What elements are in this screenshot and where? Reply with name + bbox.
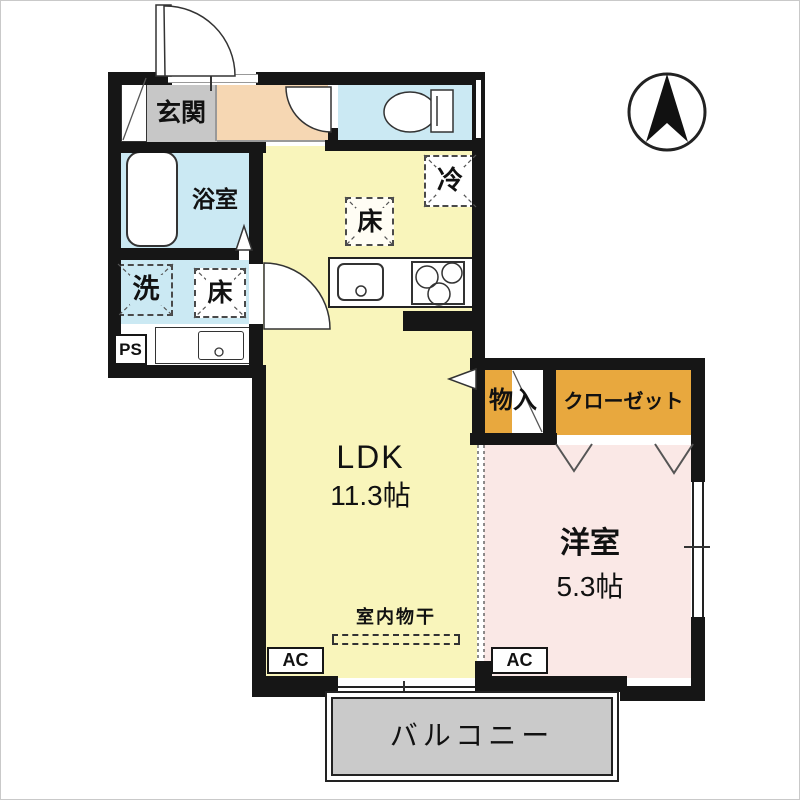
ldk-size-label: 11.3帖 — [298, 480, 443, 512]
laundry-label: 洗 — [130, 275, 162, 305]
western-size-label: 5.3帖 — [515, 570, 665, 604]
washroom-door-arc — [264, 263, 330, 329]
balcony-label: バルコニー — [331, 697, 613, 776]
shoe-cabinet-diagonal — [123, 78, 146, 140]
stove-burner-1 — [416, 266, 438, 288]
floor-wash-label: 床 — [206, 279, 234, 307]
closet-label: クローゼット — [556, 388, 691, 416]
closet-door-v2 — [655, 444, 693, 473]
western-name-label: 洋室 — [515, 526, 665, 562]
entrance-door-arc — [164, 6, 235, 76]
ldk-name-label: LDK — [298, 438, 443, 476]
toilet-tank — [431, 90, 453, 132]
washbasin-drain — [215, 348, 223, 356]
fridge-label: 冷 — [436, 167, 464, 195]
genkan-label: 玄関 — [147, 95, 215, 131]
sliding-door-marker — [449, 369, 476, 389]
stove-burner-3 — [428, 283, 450, 305]
bath-door-marker — [236, 226, 252, 250]
storage-label: 物入 — [482, 386, 544, 416]
sink-drain — [356, 286, 366, 296]
floor-plan: PS AC AC — [0, 0, 800, 800]
indoor-drying-label: 室内物干 — [320, 606, 472, 628]
toilet-door-arc — [286, 87, 331, 132]
floor-kitchen-label: 床 — [356, 208, 384, 236]
bathroom-label: 浴室 — [181, 184, 249, 214]
stove-burner-2 — [442, 263, 462, 283]
toilet-bowl — [384, 92, 436, 132]
closet-door-v1 — [556, 444, 592, 471]
